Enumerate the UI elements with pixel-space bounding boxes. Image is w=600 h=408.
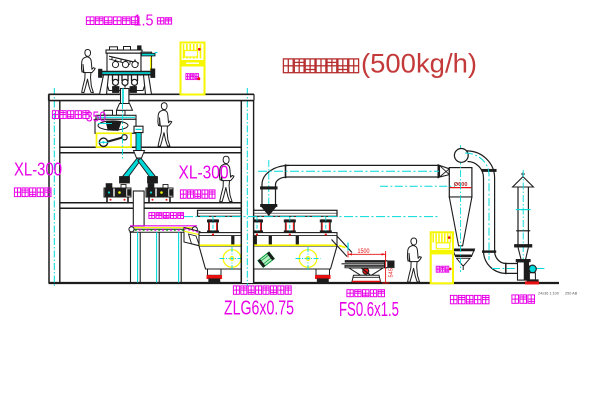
svg-text:FS0.6x1.5: FS0.6x1.5 bbox=[339, 299, 399, 321]
svg-text:350: 350 bbox=[86, 109, 106, 126]
svg-text:XL-300: XL-300 bbox=[179, 163, 229, 183]
svg-text:1.5: 1.5 bbox=[134, 13, 154, 30]
svg-text:(500kg/h): (500kg/h) bbox=[361, 49, 477, 79]
svg-text:250 AB: 250 AB bbox=[565, 292, 578, 296]
svg-text:XL-300: XL-300 bbox=[14, 160, 62, 180]
svg-text:1500: 1500 bbox=[358, 248, 370, 255]
svg-text:ZLG6x0.75: ZLG6x0.75 bbox=[224, 298, 294, 320]
svg-text:545: 545 bbox=[389, 268, 395, 277]
svg-text:24x36 1:100: 24x36 1:100 bbox=[538, 292, 559, 296]
